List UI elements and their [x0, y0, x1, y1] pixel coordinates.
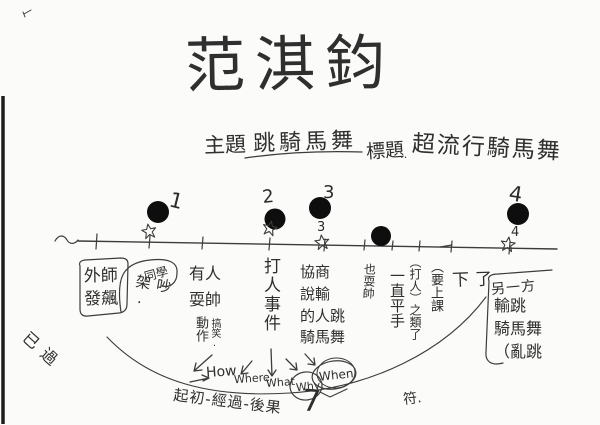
timeline-line: [55, 234, 557, 254]
star-icon: [314, 234, 329, 249]
event-note-7-side: （要上課: [426, 260, 445, 332]
star-icon: [141, 223, 157, 239]
event-note-5: 協商 說輸 的人跳 騎馬舞: [300, 262, 358, 349]
title-label: 標題: [365, 135, 405, 165]
topic-label: 主題: [203, 128, 246, 159]
point-number-3-small: 3: [317, 220, 325, 235]
event-note-6: 一直平手: [387, 268, 408, 344]
word-how: How: [205, 363, 237, 381]
mark-seven: 7: [301, 383, 322, 419]
dot-2: [265, 209, 286, 230]
event-note-6-side: （打人）之類了: [407, 256, 424, 354]
scan-smudge: [23, 10, 31, 17]
connector-squiggle: [320, 389, 347, 397]
word-what: What: [266, 375, 296, 390]
arrow-down-right-icon: [305, 354, 315, 365]
grade-mark: 符.: [402, 387, 422, 409]
event-note-8: 輸跳 騎馬舞 （亂跳: [494, 294, 558, 364]
event-note-2: 吵架.: [126, 273, 175, 326]
point-number-4: 4: [507, 181, 524, 207]
point-number-2: 2: [261, 186, 275, 208]
title-label-dots: ‥: [400, 148, 407, 161]
event-note-5-side: 也耍帥: [358, 263, 379, 332]
event-note-1: 外師 發飆: [84, 265, 129, 312]
dot-1: [147, 201, 169, 223]
dot-middle: [371, 226, 391, 246]
student-name: 范淇鈞: [184, 14, 395, 105]
topic-value: 跳騎馬舞: [252, 122, 357, 158]
word-where: Where: [234, 371, 270, 386]
event-note-3: 有人 耍帥: [189, 261, 229, 312]
point-number-3: 3: [323, 182, 334, 203]
event-note-3-sub-small: 搞笑.: [207, 318, 222, 350]
point-number-1: 1: [167, 188, 186, 215]
timeline-ticks: [96, 234, 510, 254]
event-note-4: 打人事件: [258, 257, 283, 349]
point-number-4-small: 4: [511, 225, 519, 240]
arrow-down-right-icon: [286, 359, 297, 370]
timeline-dots: [147, 197, 529, 246]
point-numbers: 1 2 3 3 4 4: [167, 181, 524, 240]
